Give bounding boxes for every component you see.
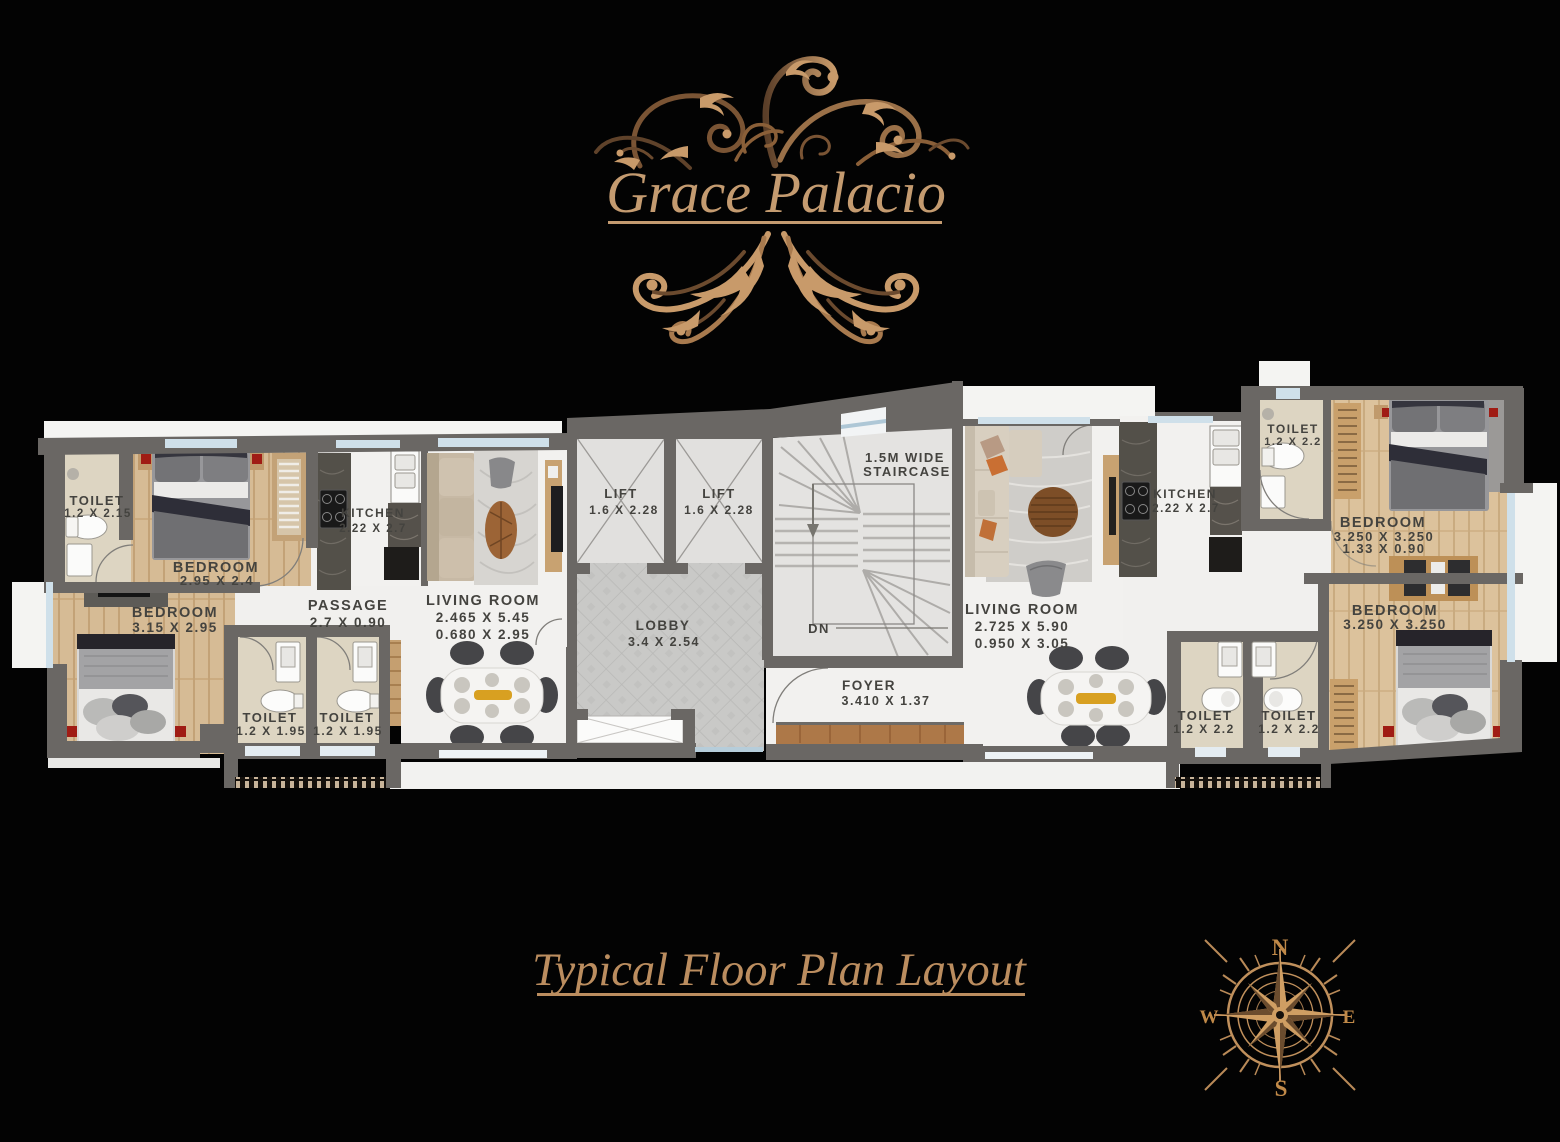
svg-text:KITCHEN: KITCHEN [1153,487,1217,501]
svg-text:0.680 X 2.95: 0.680 X 2.95 [436,627,531,642]
svg-text:TOILET: TOILET [1262,708,1317,723]
svg-text:LIVING ROOM: LIVING ROOM [965,602,1079,618]
svg-text:1.2 X 2.2: 1.2 X 2.2 [1264,436,1322,448]
svg-text:N: N [1272,935,1289,960]
svg-text:STAIRCASE: STAIRCASE [863,464,951,479]
svg-text:BEDROOM: BEDROOM [132,605,218,621]
svg-text:1.2 X 2.2: 1.2 X 2.2 [1173,722,1235,736]
svg-text:LIFT: LIFT [604,486,637,501]
svg-text:TOILET: TOILET [70,493,125,508]
svg-text:TOILET: TOILET [1267,422,1318,436]
svg-text:Grace Palacio: Grace Palacio [606,160,946,225]
svg-text:TOILET: TOILET [243,710,298,725]
svg-text:2.22 X 2.7: 2.22 X 2.7 [339,523,406,535]
svg-text:2.465 X 5.45: 2.465 X 5.45 [436,610,531,625]
svg-text:KITCHEN: KITCHEN [341,506,405,520]
svg-text:E: E [1343,1007,1356,1028]
svg-text:2.725 X 5.90: 2.725 X 5.90 [975,619,1070,634]
svg-text:1.6 X 2.28: 1.6 X 2.28 [589,503,659,517]
svg-text:LIFT: LIFT [702,486,735,501]
svg-text:S: S [1275,1076,1288,1101]
svg-text:TOILET: TOILET [320,710,375,725]
svg-text:0.950 X 3.05: 0.950 X 3.05 [975,636,1070,651]
svg-text:1.33 X 0.90: 1.33 X 0.90 [1343,541,1426,556]
svg-text:LIVING ROOM: LIVING ROOM [426,593,540,609]
svg-text:TOILET: TOILET [1178,708,1233,723]
svg-text:2.22 X 2.7: 2.22 X 2.7 [1152,503,1219,515]
svg-text:FOYER: FOYER [842,678,896,693]
svg-text:1.5M WIDE: 1.5M WIDE [865,450,945,465]
svg-text:2.95 X 2.4: 2.95 X 2.4 [180,573,254,588]
svg-text:2.7 X 0.90: 2.7 X 0.90 [310,615,387,630]
svg-text:LOBBY: LOBBY [636,618,691,633]
svg-text:1.2 X 2.15: 1.2 X 2.15 [64,508,131,520]
svg-text:3.4 X 2.54: 3.4 X 2.54 [628,635,700,649]
svg-text:PASSAGE: PASSAGE [308,598,388,614]
svg-text:W: W [1200,1007,1219,1028]
svg-text:3.250 X 3.250: 3.250 X 3.250 [1343,617,1447,632]
svg-text:1.2 X 1.95: 1.2 X 1.95 [236,724,306,738]
svg-text:DN: DN [808,621,830,636]
svg-text:Typical Floor Plan Layout: Typical Floor Plan Layout [532,945,1027,996]
svg-text:1.2 X 2.2: 1.2 X 2.2 [1258,722,1320,736]
svg-text:1.2 X 1.95: 1.2 X 1.95 [313,724,383,738]
svg-text:3.15 X 2.95: 3.15 X 2.95 [132,620,218,635]
svg-text:1.6 X 2.28: 1.6 X 2.28 [684,503,754,517]
svg-text:3.410 X 1.37: 3.410 X 1.37 [842,694,931,708]
